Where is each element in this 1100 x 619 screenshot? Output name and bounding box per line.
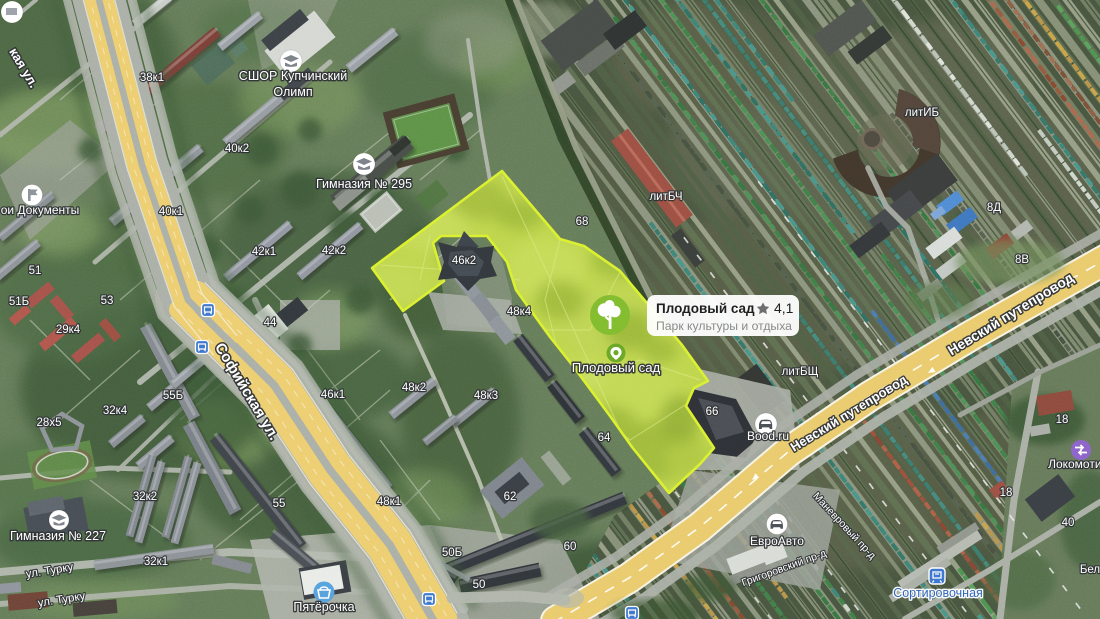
svg-text:Парк культуры и отдыха: Парк культуры и отдыха bbox=[656, 319, 792, 333]
svg-text:4,1: 4,1 bbox=[774, 300, 794, 316]
svg-text:Плодовый сад: Плодовый сад bbox=[656, 301, 755, 316]
